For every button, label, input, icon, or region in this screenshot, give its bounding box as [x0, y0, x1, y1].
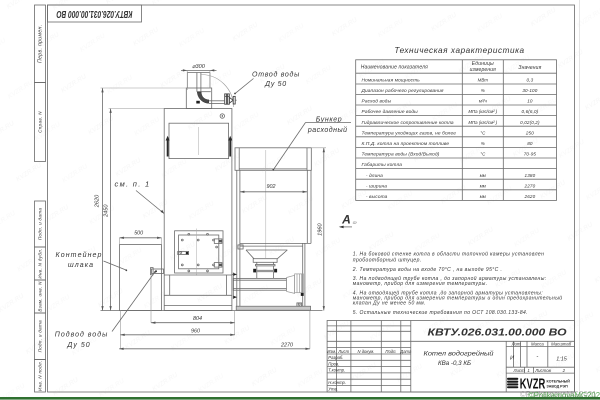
svg-text:Отвод воды: Отвод воды [252, 71, 300, 79]
svg-text:10: 10 [527, 99, 533, 104]
svg-text:Температура уходящих газов, не: Температура уходящих газов, не более [362, 130, 457, 136]
svg-text:Масса: Масса [531, 342, 544, 347]
svg-text:Взам. инв. N: Взам. инв. N [37, 281, 42, 312]
svg-text:Температура воды (Вход/Выход): Температура воды (Вход/Выход) [362, 152, 440, 158]
svg-text:0,02(0,2): 0,02(0,2) [520, 120, 540, 125]
svg-text:2620: 2620 [524, 194, 536, 199]
svg-text:МПа (кгс/см² ): МПа (кгс/см² ) [468, 120, 497, 125]
svg-text:КВТУ.026.031.00.000 ВО: КВТУ.026.031.00.000 ВО [56, 8, 132, 19]
svg-text:А: А [341, 213, 351, 227]
svg-text:°С: °С [480, 130, 486, 135]
svg-text:расходный: расходный [307, 126, 348, 134]
svg-text:%: % [481, 141, 485, 146]
svg-text:МПа (кгс/см² ): МПа (кгс/см² ) [468, 109, 497, 114]
svg-text:Т.контр.: Т.контр. [328, 368, 345, 373]
svg-text:Изм.: Изм. [327, 349, 336, 354]
svg-text:N докум.: N докум. [358, 349, 375, 354]
svg-text:2450: 2450 [104, 204, 110, 218]
svg-text:Значения: Значения [518, 65, 541, 71]
svg-text:мм: мм [480, 194, 486, 199]
svg-text:0,6(6,0): 0,6(6,0) [522, 109, 539, 114]
svg-text:КВа -0,3 КБ: КВа -0,3 КБ [438, 360, 471, 367]
svg-text:Гидравлическое сопротивление к: Гидравлическое сопротивление котла [362, 120, 454, 126]
svg-text:Техническая характеристика: Техническая характеристика [394, 46, 524, 55]
svg-text:Рабочее давление воды: Рабочее давление воды [362, 109, 419, 115]
svg-text:Подп. и дата: Подп. и дата [37, 320, 42, 353]
svg-text:2620: 2620 [95, 194, 101, 208]
svg-text:клапан Ду не менее 50 мм.: клапан Ду не менее 50 мм. [353, 300, 426, 306]
svg-text:Расход воды: Расход воды [362, 99, 392, 105]
svg-text:Листов: Листов [534, 368, 551, 373]
svg-text:КОТЕЛЬНЫЙ: КОТЕЛЬНЫЙ [547, 380, 571, 384]
svg-text:Инв. N дубл.: Инв. N дубл. [37, 248, 42, 278]
svg-text:1960: 1960 [318, 222, 324, 235]
svg-text:К.П.Д. котла на проектном топл: К.П.Д. котла на проектном топливе [362, 141, 450, 147]
svg-text:Котел водогрейный: Котел водогрейный [424, 350, 495, 357]
svg-text:-: - [536, 354, 538, 360]
svg-text:ЗАВОД РЭП: ЗАВОД РЭП [547, 385, 569, 389]
svg-text:Лит.: Лит. [511, 342, 522, 347]
svg-text:70-95: 70-95 [524, 152, 537, 157]
svg-text:Наименование показателя: Наименование показателя [361, 64, 428, 70]
svg-text:м³/ч: м³/ч [479, 99, 488, 104]
svg-text:Масштаб: Масштаб [551, 342, 572, 347]
svg-text:- высота: - высота [362, 195, 388, 200]
svg-text:Подп. и дата: Подп. и дата [37, 208, 42, 241]
svg-text:Перв. примен.: Перв. примен. [38, 25, 44, 63]
svg-text:Подп.: Подп. [385, 349, 396, 354]
svg-text:Номинальная мощность: Номинальная мощность [362, 77, 421, 83]
svg-text:2270: 2270 [524, 183, 536, 188]
svg-text:%: % [481, 88, 485, 93]
svg-text:Ду 50: Ду 50 [66, 342, 90, 349]
svg-text:30-100: 30-100 [522, 88, 537, 93]
svg-text:804: 804 [193, 316, 202, 322]
svg-text:МВт: МВт [478, 77, 489, 82]
svg-text:1:15: 1:15 [556, 356, 567, 362]
svg-text:шлака: шлака [68, 262, 94, 269]
svg-text:Лист: Лист [337, 349, 349, 354]
svg-text:Подвод воды: Подвод воды [55, 331, 108, 339]
svg-text:960: 960 [191, 329, 200, 335]
svg-text:(2): (2) [353, 221, 357, 225]
svg-text:см. п. 1: см. п. 1 [115, 179, 151, 188]
svg-text:250: 250 [525, 130, 534, 135]
svg-text:⌀300: ⌀300 [192, 64, 206, 70]
svg-text:2270: 2270 [280, 343, 293, 349]
svg-text:мм: мм [480, 173, 486, 178]
svg-text:манометр, прибор для измерения: манометр, прибор для измерения температу… [353, 281, 488, 287]
svg-text:1380: 1380 [525, 173, 536, 178]
svg-text:Справ. N: Справ. N [37, 111, 42, 133]
svg-text:КВТУ.026.031.00.000 ВО: КВТУ.026.031.00.000 ВО [428, 327, 567, 338]
svg-text:мм: мм [480, 183, 486, 188]
svg-text:Инв. N подл.: Инв. N подл. [37, 361, 42, 391]
svg-text:измерения: измерения [470, 67, 497, 73]
svg-text:Контейнер: Контейнер [55, 251, 102, 259]
svg-text:- длина: - длина [362, 173, 384, 179]
svg-text:5. Остальные технические треб: 5. Остальные технические требования по О… [353, 310, 528, 316]
svg-text:Н.контр.: Н.контр. [328, 380, 346, 385]
svg-text:Лист: Лист [513, 368, 525, 373]
svg-text:500: 500 [134, 231, 143, 237]
svg-text:2. Температура воды на входе: 2. Температура воды на входе 70°С , на в… [352, 267, 502, 273]
svg-text:0,3: 0,3 [527, 77, 534, 82]
svg-text:80: 80 [527, 141, 533, 146]
svg-text:902: 902 [267, 184, 276, 190]
svg-text:Утв.: Утв. [328, 387, 338, 392]
svg-text:Ду 50: Ду 50 [264, 81, 287, 88]
svg-text:- ширина: - ширина [362, 184, 388, 189]
svg-text:Дата: Дата [399, 349, 412, 354]
svg-text:пробоотборный штуцер.: пробоотборный штуцер. [353, 256, 422, 263]
svg-text:Габариты котла: Габариты котла [362, 162, 403, 168]
svg-text:Диапазон рабочего регулировани: Диапазон рабочего регулирования [361, 88, 444, 94]
svg-text:°С: °С [480, 152, 486, 157]
svg-text:Разраб.: Разраб. [328, 355, 343, 360]
svg-text:Пров.: Пров. [328, 361, 339, 366]
